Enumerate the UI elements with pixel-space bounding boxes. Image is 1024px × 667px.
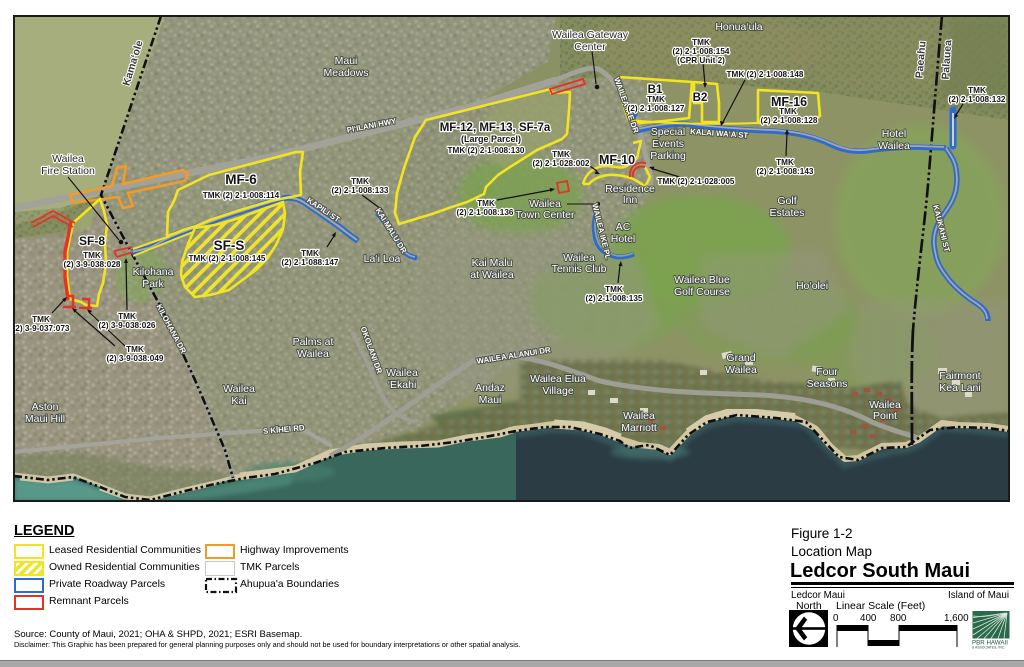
svg-text:Wailea Blue: Wailea Blue xyxy=(674,274,730,286)
svg-text:TMK: TMK xyxy=(692,38,710,47)
svg-text:Marriott: Marriott xyxy=(621,422,657,434)
svg-text:Seasons: Seasons xyxy=(807,378,848,390)
svg-text:Park: Park xyxy=(142,278,164,290)
svg-text:(2) 2-1-008:143: (2) 2-1-008:143 xyxy=(757,167,814,176)
svg-text:TMK (2) 2-1-008:148: TMK (2) 2-1-008:148 xyxy=(727,70,804,79)
svg-text:Wailea Elua: Wailea Elua xyxy=(530,373,586,385)
svg-text:TMK: TMK xyxy=(779,107,797,116)
svg-text:Wailea: Wailea xyxy=(223,383,255,395)
svg-text:Golf Course: Golf Course xyxy=(674,286,730,298)
svg-text:Hotel: Hotel xyxy=(611,233,636,245)
svg-text:MF-10: MF-10 xyxy=(599,153,635,167)
svg-text:TMK: TMK xyxy=(477,199,495,208)
svg-text:(2) 2-1-008:135: (2) 2-1-008:135 xyxy=(586,294,643,303)
svg-text:Andaz: Andaz xyxy=(475,382,505,394)
svg-text:TMK (2) 2-1-028:005: TMK (2) 2-1-028:005 xyxy=(658,177,735,186)
svg-text:at Wailea: at Wailea xyxy=(470,269,514,281)
svg-text:Meadows: Meadows xyxy=(324,67,369,79)
svg-text:AC: AC xyxy=(616,221,631,233)
svg-text:(2) 2-1-088:147: (2) 2-1-088:147 xyxy=(282,258,339,267)
svg-text:(Large Parcel): (Large Parcel) xyxy=(461,134,521,144)
svg-text:TMK: TMK xyxy=(126,345,144,354)
svg-text:B2: B2 xyxy=(693,92,708,104)
svg-text:Maui: Maui xyxy=(479,394,502,406)
svg-text:(2) 2-1-008:132: (2) 2-1-008:132 xyxy=(949,95,1006,104)
svg-text:‘Ekahi: ‘Ekahi xyxy=(388,379,417,391)
svg-text:Center: Center xyxy=(574,41,606,53)
svg-text:TMK: TMK xyxy=(647,95,665,104)
svg-text:Special: Special xyxy=(651,126,685,138)
svg-text:Estates: Estates xyxy=(769,207,804,219)
svg-text:Palms at: Palms at xyxy=(293,336,334,348)
svg-text:Grand: Grand xyxy=(726,352,755,364)
svg-text:Aston: Aston xyxy=(32,401,59,413)
svg-text:Wailea: Wailea xyxy=(725,364,757,376)
svg-text:Point: Point xyxy=(873,410,897,422)
svg-text:Tennis Club: Tennis Club xyxy=(552,263,607,275)
svg-text:MF-12, MF-13, SF-7a: MF-12, MF-13, SF-7a xyxy=(440,122,551,134)
svg-text:(2) 2-1-028:002: (2) 2-1-028:002 xyxy=(533,159,590,168)
svg-text:Events: Events xyxy=(652,138,684,150)
svg-text:Fairmont: Fairmont xyxy=(939,370,981,382)
svg-text:(2) 2-1-008:136: (2) 2-1-008:136 xyxy=(457,208,514,217)
svg-text:Wailea: Wailea xyxy=(878,140,910,152)
svg-text:(2) 3-9-038:049: (2) 3-9-038:049 xyxy=(107,354,164,363)
svg-text:MF-6: MF-6 xyxy=(225,172,257,187)
svg-text:Kea Lani: Kea Lani xyxy=(939,382,980,394)
svg-text:TMK: TMK xyxy=(118,312,136,321)
svg-text:TMK: TMK xyxy=(968,86,986,95)
svg-text:Wailea: Wailea xyxy=(623,410,655,422)
svg-text:TMK: TMK xyxy=(605,285,623,294)
svg-text:Wailea: Wailea xyxy=(386,367,418,379)
svg-text:Parking: Parking xyxy=(650,150,686,162)
svg-text:Ho‘olei: Ho‘olei xyxy=(796,280,828,292)
svg-text:(2) 3-9-038:026: (2) 3-9-038:026 xyxy=(99,321,156,330)
svg-text:TMK: TMK xyxy=(552,150,570,159)
svg-text:TMK (2) 2-1-008:145: TMK (2) 2-1-008:145 xyxy=(189,254,266,263)
svg-text:(2) 2-1-008:127: (2) 2-1-008:127 xyxy=(628,104,685,113)
svg-text:(2) 3-9-037:073: (2) 3-9-037:073 xyxy=(13,324,70,333)
svg-text:Honua‘ula: Honua‘ula xyxy=(715,21,762,33)
svg-text:TMK: TMK xyxy=(351,177,369,186)
svg-text:Kai: Kai xyxy=(231,395,246,407)
svg-text:(2) 2-1-008:154: (2) 2-1-008:154 xyxy=(673,47,730,56)
svg-text:Maui: Maui xyxy=(335,55,358,67)
svg-text:La‘i Loa: La‘i Loa xyxy=(364,253,401,265)
svg-text:& ASSOCIATES, INC.: & ASSOCIATES, INC. xyxy=(972,646,1005,650)
svg-text:Maui Hill: Maui Hill xyxy=(25,413,65,425)
svg-text:TMK: TMK xyxy=(32,315,50,324)
svg-text:(CPR Unit 2): (CPR Unit 2) xyxy=(677,56,725,65)
svg-text:Wailea: Wailea xyxy=(52,153,84,165)
svg-text:TMK (2) 2-1-008:114: TMK (2) 2-1-008:114 xyxy=(203,191,280,200)
svg-text:Wailea Gateway: Wailea Gateway xyxy=(552,29,629,41)
svg-text:(2) 2-1-008:133: (2) 2-1-008:133 xyxy=(332,186,389,195)
svg-text:Village: Village xyxy=(542,385,573,397)
svg-text:Kilohana: Kilohana xyxy=(133,266,174,278)
svg-text:Inn: Inn xyxy=(623,194,638,206)
svg-text:Four: Four xyxy=(816,366,838,378)
svg-text:(2) 2-1-008:128: (2) 2-1-008:128 xyxy=(761,116,818,125)
svg-text:SF-8: SF-8 xyxy=(79,234,105,248)
svg-text:(2) 3-9-038:028: (2) 3-9-038:028 xyxy=(64,260,121,269)
svg-text:Fire Station: Fire Station xyxy=(41,165,95,177)
svg-text:TMK: TMK xyxy=(776,158,794,167)
svg-text:Kai Malu: Kai Malu xyxy=(472,257,513,269)
svg-text:TMK: TMK xyxy=(301,249,319,258)
svg-text:SF-S: SF-S xyxy=(214,238,245,253)
svg-text:TMK: TMK xyxy=(83,251,101,260)
svg-text:Golf: Golf xyxy=(777,195,796,207)
svg-text:Town Center: Town Center xyxy=(516,209,575,221)
svg-text:TMK (2) 2-1-008:130: TMK (2) 2-1-008:130 xyxy=(448,146,525,155)
svg-text:Wailea: Wailea xyxy=(297,348,329,360)
svg-text:Hotel: Hotel xyxy=(882,128,907,140)
